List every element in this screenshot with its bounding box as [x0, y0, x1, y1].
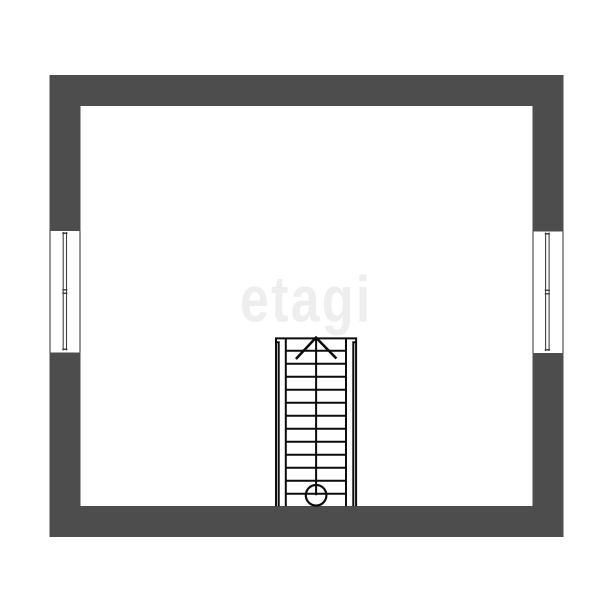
- svg-text:etagi: etagi: [240, 264, 372, 336]
